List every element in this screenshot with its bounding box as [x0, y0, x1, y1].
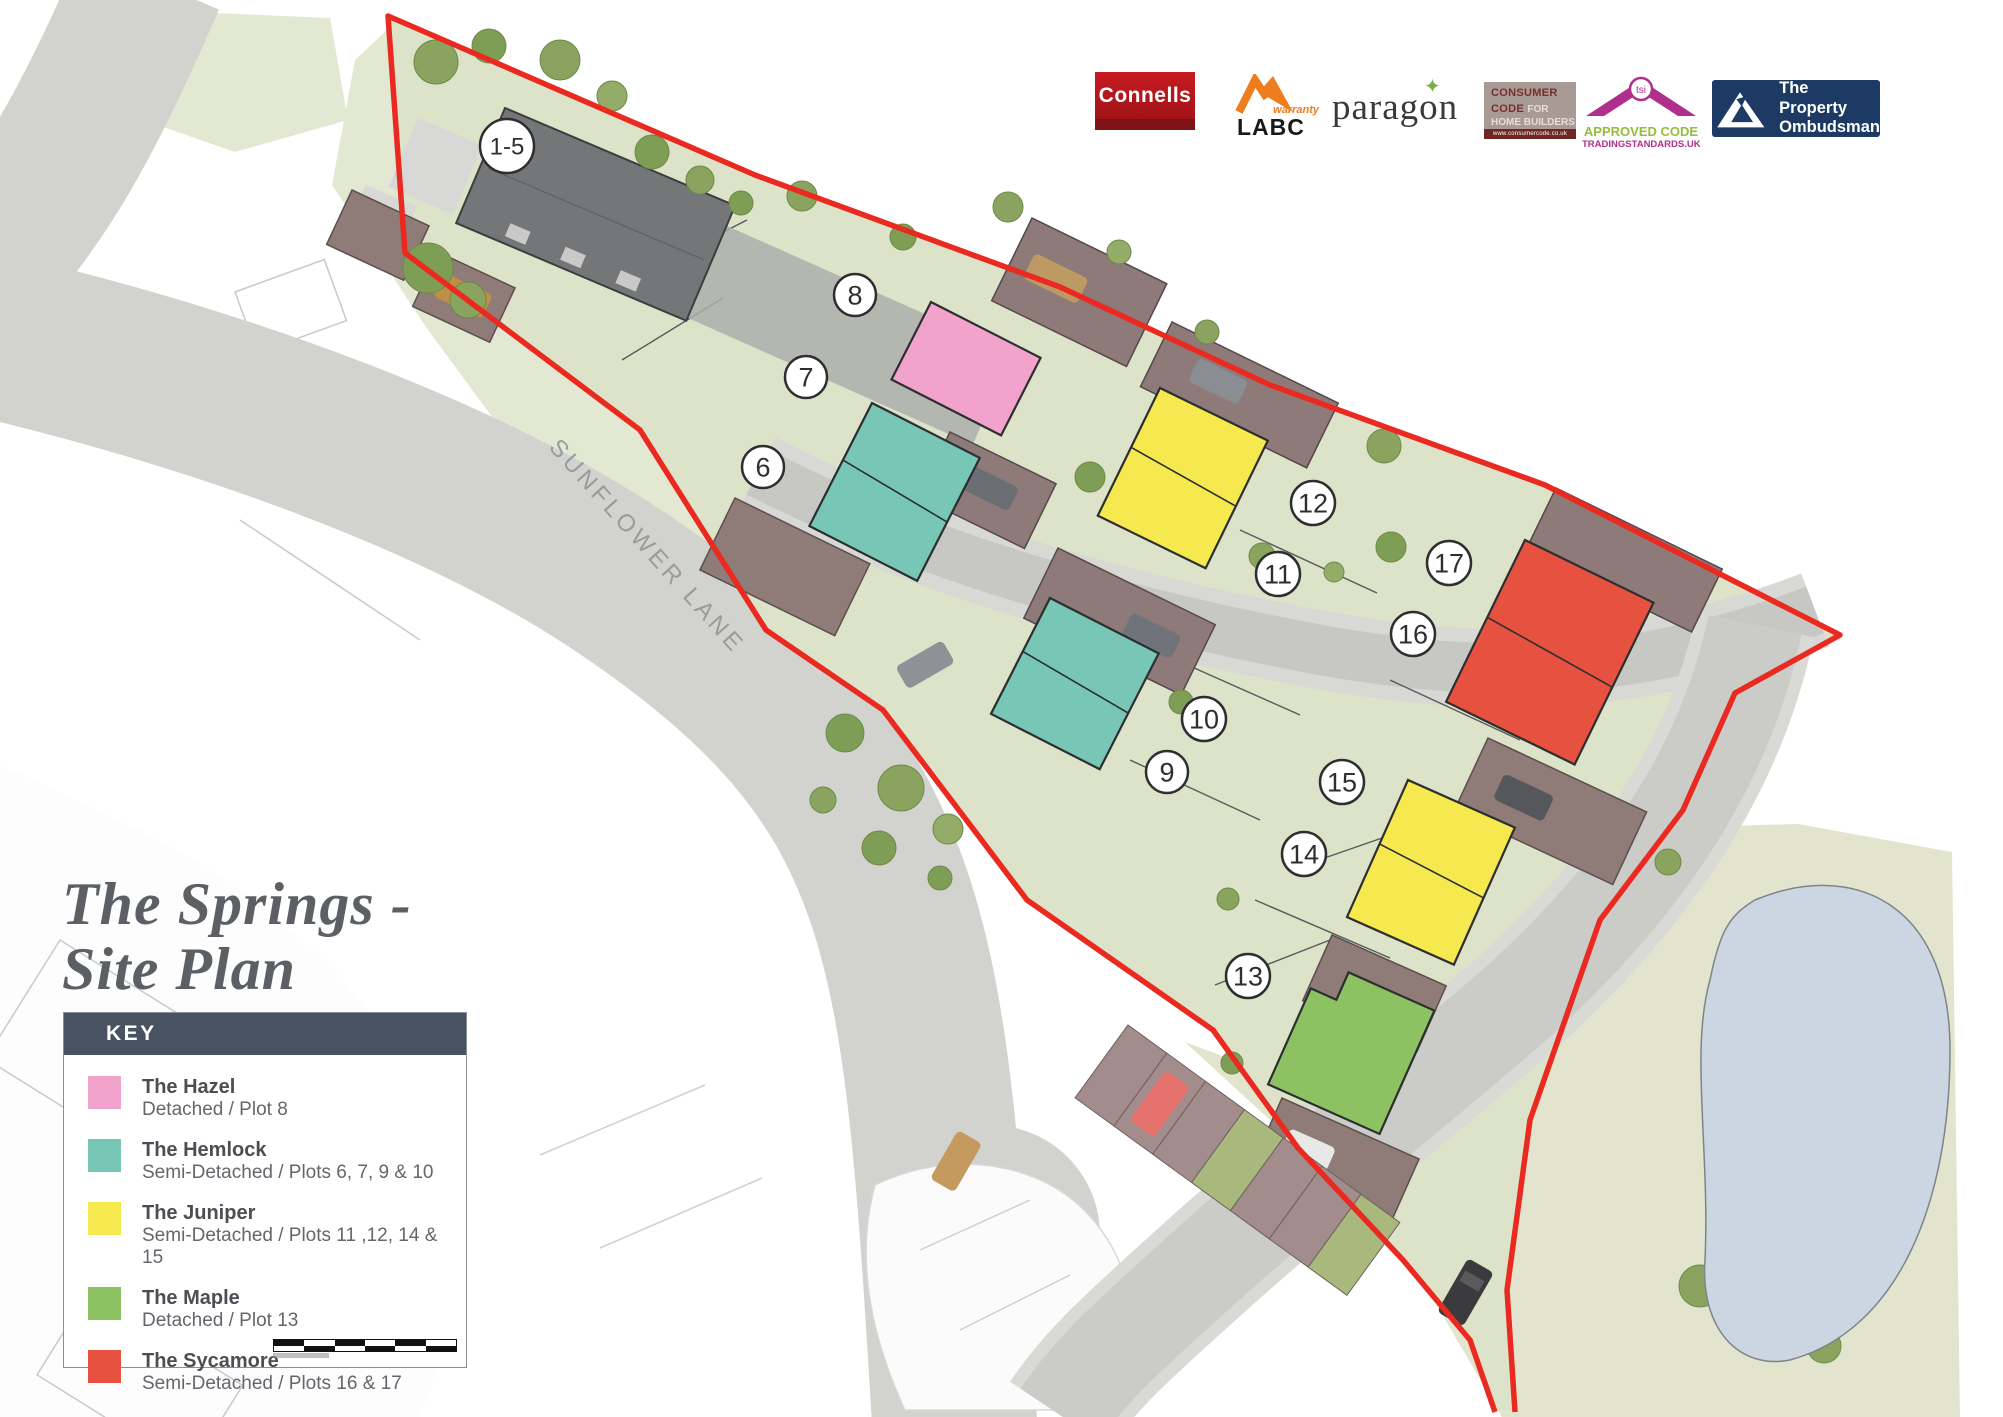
key-row-juniper: The Juniper Semi-Detached / Plots 11 ,12…: [88, 1202, 456, 1271]
key-header: KEY: [64, 1013, 466, 1055]
consumer-code-line2b: FOR: [1527, 104, 1548, 115]
plot-marker-15: 15: [1320, 760, 1364, 804]
property-ombudsman-logo: The Property Ombudsman: [1712, 80, 1880, 137]
labc-warranty-logo: warranty LABC: [1235, 74, 1319, 134]
plot-marker-17: 17: [1427, 541, 1471, 585]
key-row-hemlock: The Hemlock Semi-Detached / Plots 6, 7, …: [88, 1139, 456, 1185]
key-item-name: The Hemlock: [142, 1139, 434, 1162]
ombudsman-line1: The Property: [1779, 79, 1880, 119]
sunflower-lane-road: [0, 0, 150, 280]
tsi-tradingstandards-text: TRADINGSTANDARDS.UK: [1582, 139, 1700, 150]
sycamore-swatch: [88, 1350, 121, 1383]
connells-logo: Connells: [1095, 72, 1195, 130]
plot-marker-10: 10: [1182, 697, 1226, 741]
page-title-line2: Site Plan: [62, 937, 412, 1002]
plot-marker-12: 12: [1291, 481, 1335, 525]
key-item-desc: Detached / Plot 8: [142, 1099, 288, 1122]
ombudsman-triangle-icon: [1712, 84, 1773, 134]
svg-text:tsi: tsi: [1636, 85, 1646, 96]
tsi-approved-code-text: APPROVED CODE: [1582, 124, 1700, 139]
maple-swatch: [88, 1287, 121, 1320]
plot-marker-9: 9: [1146, 751, 1188, 793]
svg-text:8: 8: [847, 280, 862, 310]
hemlock-swatch: [88, 1139, 121, 1172]
key-item-desc: Semi-Detached / Plots 11 ,12, 14 & 15: [142, 1225, 456, 1271]
ombudsman-line2: Ombudsman: [1779, 118, 1880, 138]
key-item-name: The Sycamore: [142, 1350, 402, 1373]
page-title-line1: The Springs -: [62, 872, 412, 937]
plot-marker-16: 16: [1391, 612, 1435, 656]
key-row-sycamore: The Sycamore Semi-Detached / Plots 16 & …: [88, 1350, 456, 1396]
scale-caption: [273, 1353, 329, 1358]
scale-bar: [273, 1339, 457, 1352]
key-panel: KEY The Hazel Detached / Plot 8 The Heml…: [63, 1012, 467, 1368]
svg-text:9: 9: [1159, 757, 1174, 787]
plot-marker-7: 7: [785, 356, 827, 398]
key-item-name: The Juniper: [142, 1202, 456, 1225]
svg-text:10: 10: [1189, 704, 1219, 734]
key-item-desc: Semi-Detached / Plots 16 & 17: [142, 1373, 402, 1396]
plot-marker-1-5: 1-5: [480, 119, 534, 173]
key-row-maple: The Maple Detached / Plot 13: [88, 1287, 456, 1333]
svg-text:16: 16: [1398, 619, 1428, 649]
page-title: The Springs - Site Plan: [62, 872, 412, 1002]
svg-text:14: 14: [1289, 839, 1319, 869]
consumer-code-line3: HOME BUILDERS: [1491, 117, 1576, 128]
consumer-code-line1: CONSUMER: [1491, 87, 1576, 99]
juniper-swatch: [88, 1202, 121, 1235]
plot-marker-6: 6: [742, 446, 784, 488]
paragon-star-icon: ✦: [1424, 74, 1441, 99]
key-row-hazel: The Hazel Detached / Plot 8: [88, 1076, 456, 1122]
hazel-swatch: [88, 1076, 121, 1109]
consumer-code-url: www.consumercode.co.uk: [1484, 129, 1576, 139]
svg-text:7: 7: [798, 362, 813, 392]
key-item-desc: Semi-Detached / Plots 6, 7, 9 & 10: [142, 1162, 434, 1185]
connells-logo-text: Connells: [1099, 84, 1192, 108]
svg-text:6: 6: [755, 452, 770, 482]
consumer-code-line2a: CODE: [1491, 103, 1527, 115]
plot-marker-11: 11: [1256, 552, 1300, 596]
svg-text:1-5: 1-5: [490, 133, 525, 160]
plot-marker-13: 13: [1226, 954, 1270, 998]
tsi-approved-code-logo: tsi APPROVED CODE TRADINGSTANDARDS.UK: [1582, 76, 1700, 146]
paragon-logo: paragon ✦: [1332, 86, 1462, 136]
key-item-name: The Hazel: [142, 1076, 288, 1099]
key-item-desc: Detached / Plot 13: [142, 1310, 298, 1333]
tsi-roof-icon: tsi: [1582, 76, 1700, 118]
svg-text:17: 17: [1434, 548, 1464, 578]
labc-text: LABC: [1237, 114, 1305, 141]
svg-text:13: 13: [1233, 961, 1263, 991]
consumer-code-logo: CONSUMER CODE FOR HOME BUILDERS www.cons…: [1484, 82, 1576, 139]
key-item-name: The Maple: [142, 1287, 298, 1310]
plot-marker-14: 14: [1282, 832, 1326, 876]
plot-marker-8: 8: [834, 274, 876, 316]
svg-text:12: 12: [1298, 488, 1328, 518]
svg-text:11: 11: [1264, 559, 1292, 589]
svg-text:15: 15: [1327, 767, 1357, 797]
